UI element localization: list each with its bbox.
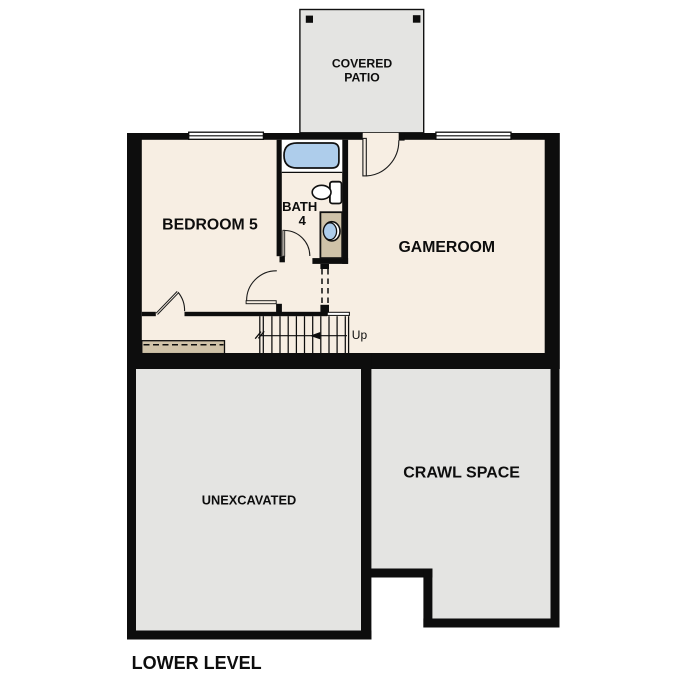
svg-text:4: 4 <box>299 213 307 228</box>
svg-text:UNEXCAVATED: UNEXCAVATED <box>202 492 297 507</box>
svg-text:LOWER LEVEL: LOWER LEVEL <box>132 653 262 673</box>
svg-text:BEDROOM 5: BEDROOM 5 <box>162 217 258 234</box>
svg-text:PATIO: PATIO <box>344 71 379 85</box>
svg-text:COVERED: COVERED <box>332 57 392 71</box>
svg-text:CRAWL SPACE: CRAWL SPACE <box>403 465 520 482</box>
svg-text:GAMEROOM: GAMEROOM <box>399 239 496 256</box>
svg-text:Up: Up <box>352 328 368 342</box>
